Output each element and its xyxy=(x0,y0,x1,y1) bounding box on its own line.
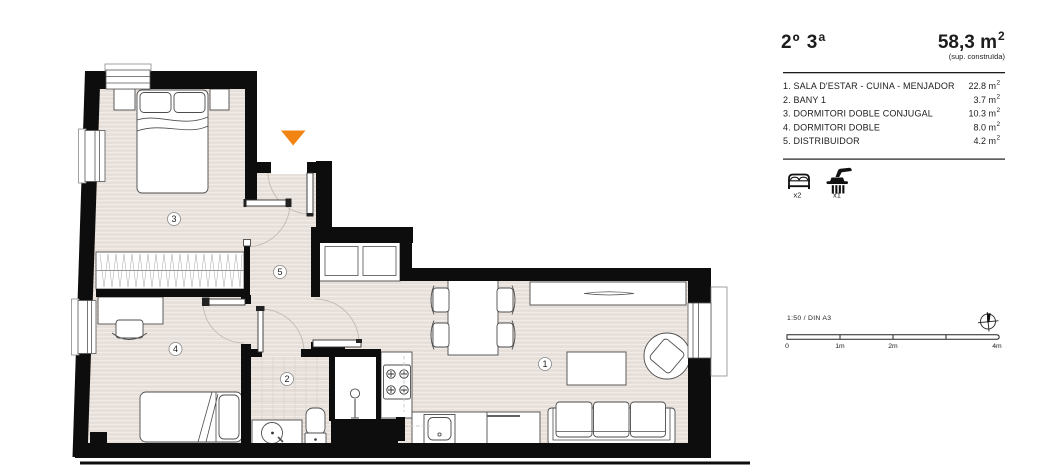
svg-text:4m: 4m xyxy=(992,343,1002,350)
svg-text:2: 2 xyxy=(997,107,1001,114)
svg-text:2. BANY 1: 2. BANY 1 xyxy=(783,95,826,105)
svg-text:10.3 m: 10.3 m xyxy=(968,109,996,119)
svg-text:1: 1 xyxy=(542,359,547,369)
svg-text:2: 2 xyxy=(998,29,1005,43)
svg-text:2º 3ª: 2º 3ª xyxy=(781,32,826,53)
svg-text:5: 5 xyxy=(277,267,282,277)
svg-text:58,3 m: 58,3 m xyxy=(938,32,997,53)
svg-text:2: 2 xyxy=(997,80,1001,87)
svg-text:1:50 / DIN A3: 1:50 / DIN A3 xyxy=(787,315,831,322)
svg-text:2: 2 xyxy=(284,374,289,384)
svg-text:0: 0 xyxy=(785,343,789,350)
svg-text:2: 2 xyxy=(997,135,1001,142)
svg-text:5. DISTRIBUIDOR: 5. DISTRIBUIDOR xyxy=(783,136,860,146)
svg-text:1m: 1m xyxy=(835,343,845,350)
svg-text:2m: 2m xyxy=(888,343,898,350)
svg-text:(sup. construïda): (sup. construïda) xyxy=(949,52,1006,61)
svg-text:3.7 m: 3.7 m xyxy=(973,95,996,105)
svg-text:4.2 m: 4.2 m xyxy=(973,136,996,146)
svg-text:1. SALA D'ESTAR - CUINA - MENJ: 1. SALA D'ESTAR - CUINA - MENJADOR xyxy=(783,81,955,91)
svg-text:x1: x1 xyxy=(833,191,841,200)
svg-text:2: 2 xyxy=(997,93,1001,100)
svg-text:8.0 m: 8.0 m xyxy=(973,122,996,132)
svg-text:2: 2 xyxy=(997,121,1001,128)
svg-text:4: 4 xyxy=(173,344,178,354)
svg-text:3. DORMITORI DOBLE CONJUGAL: 3. DORMITORI DOBLE CONJUGAL xyxy=(783,109,933,119)
svg-text:x2: x2 xyxy=(794,191,802,200)
svg-text:4. DORMITORI DOBLE: 4. DORMITORI DOBLE xyxy=(783,122,880,132)
svg-text:3: 3 xyxy=(171,214,176,224)
svg-text:22.8 m: 22.8 m xyxy=(968,81,996,91)
